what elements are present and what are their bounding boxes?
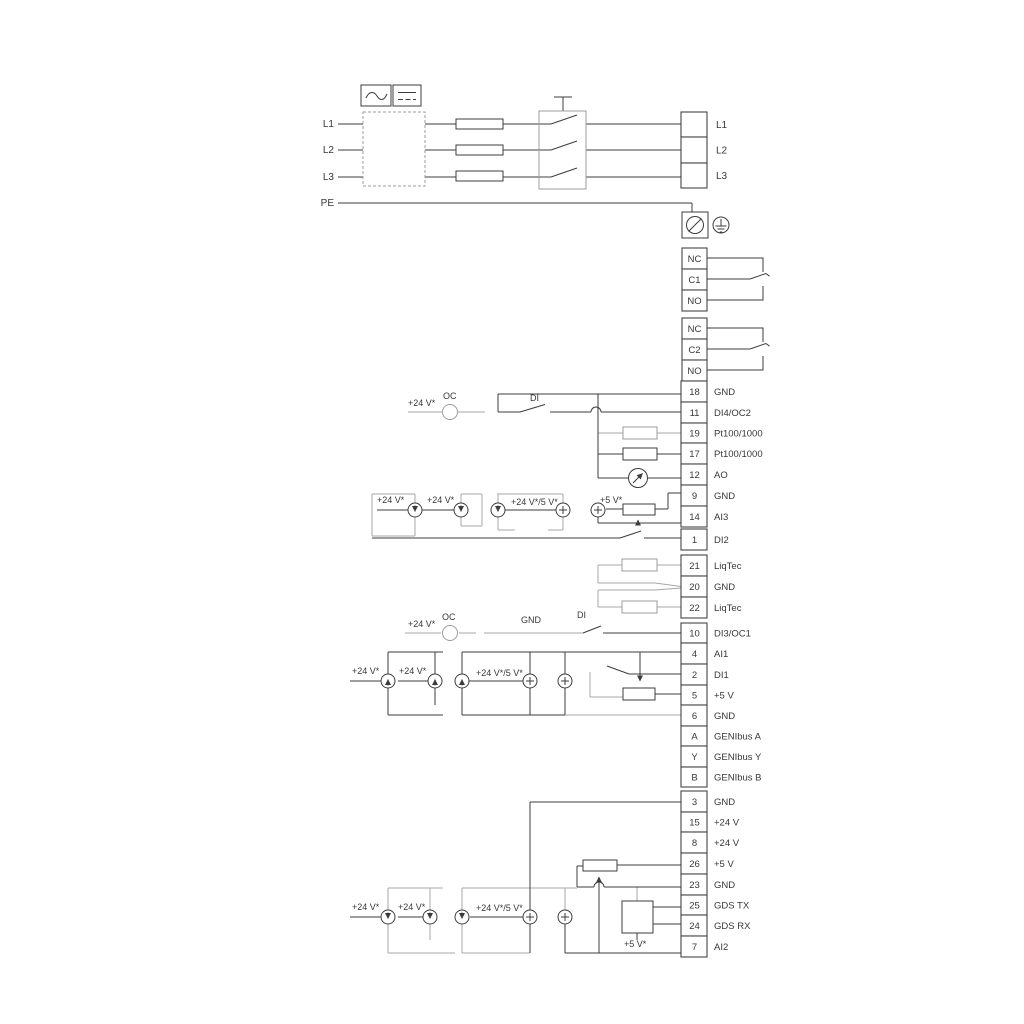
terminal-label: DI3/OC1 [714,629,751,640]
potentiometer-icon [623,688,655,700]
terminal-number: 8 [692,838,697,849]
terminal-label: AI2 [714,942,728,953]
input-line-label: L2 [323,145,335,156]
terminal-number: 15 [689,818,700,829]
input-line-label: L1 [323,119,335,130]
label-24v-ai2-2: +24 V* [398,902,426,912]
terminal-label: GDS RX [714,921,751,932]
terminal-number: 21 [689,561,700,572]
current-source-icon [428,674,442,688]
label-di4: DI [530,393,539,403]
terminal-label: DI2 [714,535,729,546]
label-oc2: OC [443,391,457,401]
source-icons [381,503,605,924]
terminal-label: Pt100/1000 [714,449,763,460]
analog-meter-icon [629,469,648,488]
voltage-source-icon [523,674,537,688]
potentiometer-icon [583,860,617,871]
potentiometer-icon [623,504,655,515]
current-source-icon [454,503,468,517]
terminal-label: GND [714,797,735,808]
terminal-number: 10 [689,629,700,640]
label-oc1: OC [442,612,456,622]
terminal-label: Pt100/1000 [714,429,763,440]
relay-contacts [707,258,770,370]
fuse-icon [456,171,503,181]
label-5v-ai3: +5 V* [600,495,623,505]
current-source-icon [408,503,422,517]
terminal-number: 19 [689,429,700,440]
terminal-label: GND [714,582,735,593]
terminal-label: AI1 [714,649,728,660]
terminal-label: GND [714,491,735,502]
terminal-number: 24 [689,921,700,932]
label-di3: DI [577,610,586,620]
relay2-contact [707,328,770,370]
relay1-terminal-block: NCC1NO [682,248,707,311]
terminal-label: DI4/OC2 [714,408,751,419]
terminal-number: 5 [692,691,697,702]
terminal-number: 18 [689,387,700,398]
ai2-options [350,802,681,953]
terminal-label: GND [714,880,735,891]
mains-terminal-block: L1L2L3 [681,112,728,188]
label-24v-ai1-2: +24 V* [399,666,427,676]
terminal-number: 20 [689,582,700,593]
relay-terminal-label: C2 [688,345,700,356]
di3-row [405,626,681,641]
terminal-number: 26 [689,859,700,870]
io-terminal-block-3: 3GND15+24 V8+24 V26+5 V23GND25GDS TX24GD… [681,791,751,957]
label-24v5v-ai3: +24 V*/5 V* [511,497,558,507]
terminal-label: GENIbus A [714,732,762,743]
terminal-label: LiqTec [714,561,742,572]
terminal-number: 25 [689,901,700,912]
dc-symbol-box [393,85,421,106]
current-source-icon [455,674,469,688]
terminal-number: 1 [692,535,697,546]
terminal-number: 4 [692,649,697,660]
terminal-number: 23 [689,880,700,891]
label-24v5v-ai2: +24 V*/5 V* [476,903,523,913]
label-24v-ai2-1: +24 V* [352,902,380,912]
open-collector-icon [443,405,458,420]
wiring-diagram: L1 L2 L3 PE [0,0,1024,1024]
emc-filter-box [363,112,425,186]
input-line-label: L3 [323,172,335,183]
terminal-label: +24 V [714,838,740,849]
terminal-number: 12 [689,470,700,481]
resistor-icon [623,427,657,439]
io-terminal-block-1: 18GND11DI4/OC219Pt100/100017Pt100/100012… [681,381,763,550]
io-terminal-block-2: 10DI3/OC14AI12DI15+5 V6GNDAGENIbus AYGEN… [681,623,762,787]
label-24v-ai1-1: +24 V* [352,666,380,676]
output-line-label: L3 [716,171,728,182]
resistor-icon [623,448,657,460]
voltage-source-icon [591,503,605,517]
terminal-label: GND [714,711,735,722]
fuse-icon [456,119,503,129]
voltage-source-icon [523,910,537,924]
terminal-number: 6 [692,711,697,722]
mains-terminal-cell [681,163,707,188]
voltage-source-icon [556,503,570,517]
terminal-number: 11 [690,408,700,419]
relay-terminal-label: NC [688,324,702,335]
label-gnd-di3: GND [521,615,542,625]
relay-terminal-label: NO [687,366,701,377]
voltage-source-icon [558,674,572,688]
mains-terminal-cell [681,112,707,137]
terminal-label: LiqTec [714,603,742,614]
label-24v5v-ai1: +24 V*/5 V* [476,668,523,678]
resistor-icon [622,559,657,571]
current-source-icon [381,910,395,924]
relay-terminal-label: NC [688,254,702,265]
terminal-label: GDS TX [714,901,750,912]
terminal-number: 22 [689,603,700,614]
terminal-label: DI1 [714,670,729,681]
terminal-number: 7 [692,942,697,953]
terminal-label: +5 V [714,859,734,870]
terminal-label: GENIbus B [714,773,762,784]
terminal-number: 14 [689,512,700,523]
io1-wiring [408,394,681,488]
label-5v-gds: +5 V* [624,939,647,949]
open-collector-icon [443,626,458,641]
relay2-terminal-block: NCC2NO [682,318,707,381]
terminal-number: Y [691,752,698,763]
label-24v-oc1: +24 V* [408,619,436,629]
liqtec-wiring [598,559,681,613]
current-source-icon [423,910,437,924]
wiring-diagram-canvas: L1 L2 L3 PE [0,0,1024,1024]
liqtec-terminal-block: 21LiqTec20GND22LiqTec [681,555,742,618]
input-line-label: PE [321,198,335,209]
terminal-number: 2 [692,670,697,681]
output-line-label: L1 [716,120,728,131]
terminal-label: +24 V [714,818,740,829]
relay-terminal-label: NO [687,296,701,307]
terminal-number: B [691,773,697,784]
terminal-number: 3 [692,797,697,808]
current-source-icon [455,910,469,924]
terminal-label: AO [714,470,728,481]
relay1-contact [707,258,770,300]
terminal-label: GND [714,387,735,398]
current-source-icon [491,503,505,517]
terminal-number: A [691,732,698,743]
terminal-label: GENIbus Y [714,752,762,763]
terminal-label: +5 V [714,691,734,702]
ai1-options [350,652,681,715]
mains-power-section: L1 L2 L3 PE [321,85,729,238]
voltage-source-icon [558,910,572,924]
terminal-label: AI3 [714,512,728,523]
relay-terminal-label: C1 [688,275,700,286]
mains-terminal-cell [681,137,707,163]
output-line-label: L2 [716,146,728,157]
label-24v-ai3-1: +24 V* [377,495,405,505]
label-24v-oc2: +24 V* [408,398,436,408]
fuse-icon [456,145,503,155]
terminal-number: 9 [692,491,697,502]
resistor-icon [622,601,657,613]
label-24v-ai3-2: +24 V* [427,495,455,505]
terminal-number: 17 [689,449,700,460]
gds-sensor-box-icon [622,901,653,933]
power-wires [338,97,692,212]
current-source-icon [381,674,395,688]
